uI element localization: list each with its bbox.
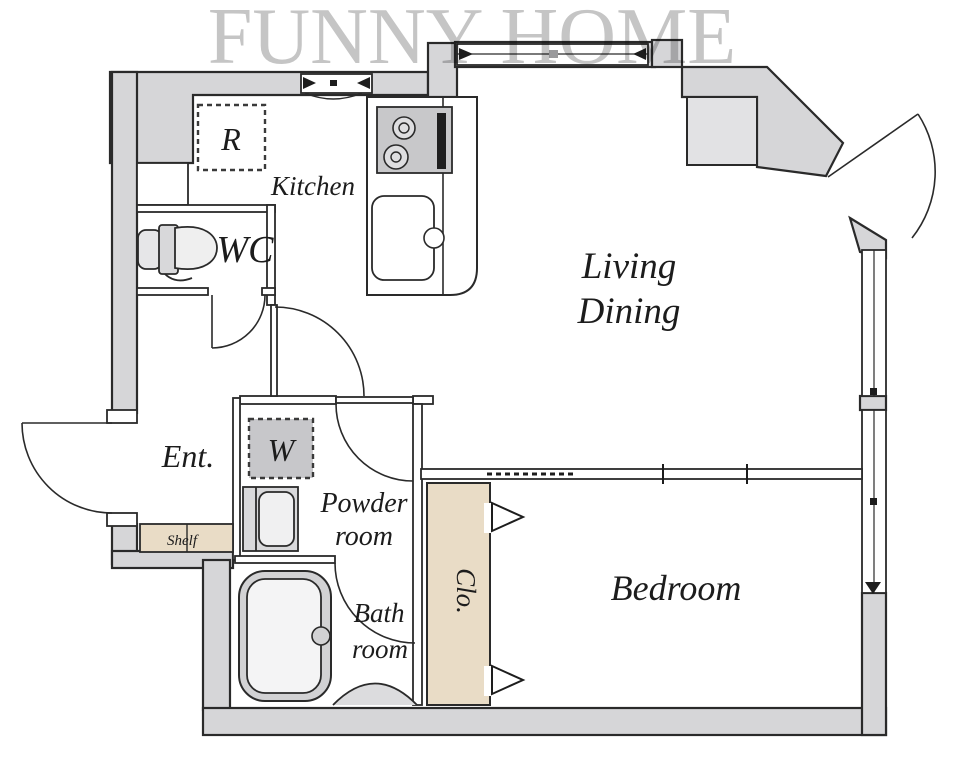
closet-door-arrow-bottom-icon xyxy=(492,666,523,694)
kitchen-label: Kitchen xyxy=(270,171,355,201)
wall-powder-top xyxy=(240,396,336,404)
terrace-alcove xyxy=(687,97,757,165)
washbasin-icon xyxy=(243,487,298,551)
entrance-door-arc xyxy=(22,423,112,513)
stove-burner-2 xyxy=(384,145,408,169)
closet-door-arrow-top-icon xyxy=(492,503,523,531)
entrance-door-jamb-bottom xyxy=(107,513,137,526)
terrace-door-arc xyxy=(912,114,935,238)
entrance-label: Ent. xyxy=(161,438,214,474)
wc-label: WC xyxy=(217,229,275,271)
right-window-latch-icon xyxy=(870,388,877,395)
wall-entrance-powder xyxy=(233,398,240,560)
wall-bottom xyxy=(203,708,886,735)
vanity-basin xyxy=(259,492,294,546)
kitchen-door-leaf xyxy=(271,305,277,396)
floor-plan-svg: R Kitchen WC Living Dining Ent. W Powder… xyxy=(0,0,959,765)
stove-grill-icon xyxy=(437,113,446,169)
entrance-door-jamb-top xyxy=(107,410,137,423)
kitchen-counter xyxy=(367,97,477,295)
wall-bottom-left-vertical xyxy=(203,560,230,710)
shelf-label: Shelf xyxy=(167,533,199,549)
kitchen-door-arc xyxy=(275,307,364,396)
pipe-shaft-box xyxy=(137,163,188,205)
right-window-lower-latch-icon xyxy=(870,498,877,505)
wall-wc-bottom-left xyxy=(137,288,208,295)
bedroom-label: Bedroom xyxy=(611,568,742,608)
closet-notch-top xyxy=(484,503,491,533)
stove-burner-1 xyxy=(393,117,415,139)
window-divider-block xyxy=(860,396,886,410)
refrigerator-label: R xyxy=(220,121,241,157)
powder-label-line2: room xyxy=(335,521,393,552)
bathtub-inner xyxy=(247,579,321,693)
kitchen-sink-bump xyxy=(424,228,444,248)
wall-left xyxy=(112,72,137,413)
bath-label-line1: Bath xyxy=(354,598,405,628)
closet-label: Clo. xyxy=(451,568,481,614)
powder-label-line1: Powder xyxy=(319,488,407,519)
living-label-line2: Dining xyxy=(577,291,681,332)
bath-label-line2: room xyxy=(352,634,408,664)
bathtub-notch xyxy=(312,627,330,645)
washing-machine-label: W xyxy=(268,432,298,468)
toilet-bowl xyxy=(175,227,217,269)
wall-right-lower xyxy=(862,593,886,735)
bath-threshold-arc xyxy=(333,684,417,706)
wall-powder-closet xyxy=(413,404,422,705)
watermark-logo: FUNNY HOME xyxy=(208,0,736,81)
closet-notch-bottom xyxy=(484,666,491,696)
wc-door-arc xyxy=(212,295,265,348)
bathtub-icon xyxy=(239,571,331,701)
wall-wc-bottom-right xyxy=(262,288,275,295)
living-label-line1: Living xyxy=(581,246,677,287)
wall-powder-top-cap xyxy=(413,396,433,404)
powder-door-leaf xyxy=(336,397,413,403)
wall-powder-bath xyxy=(235,556,335,563)
floor-plan: R Kitchen WC Living Dining Ent. W Powder… xyxy=(0,0,959,765)
wall-wc-top xyxy=(137,205,275,212)
powder-door-arc xyxy=(336,404,413,481)
toilet-icon xyxy=(138,225,217,280)
